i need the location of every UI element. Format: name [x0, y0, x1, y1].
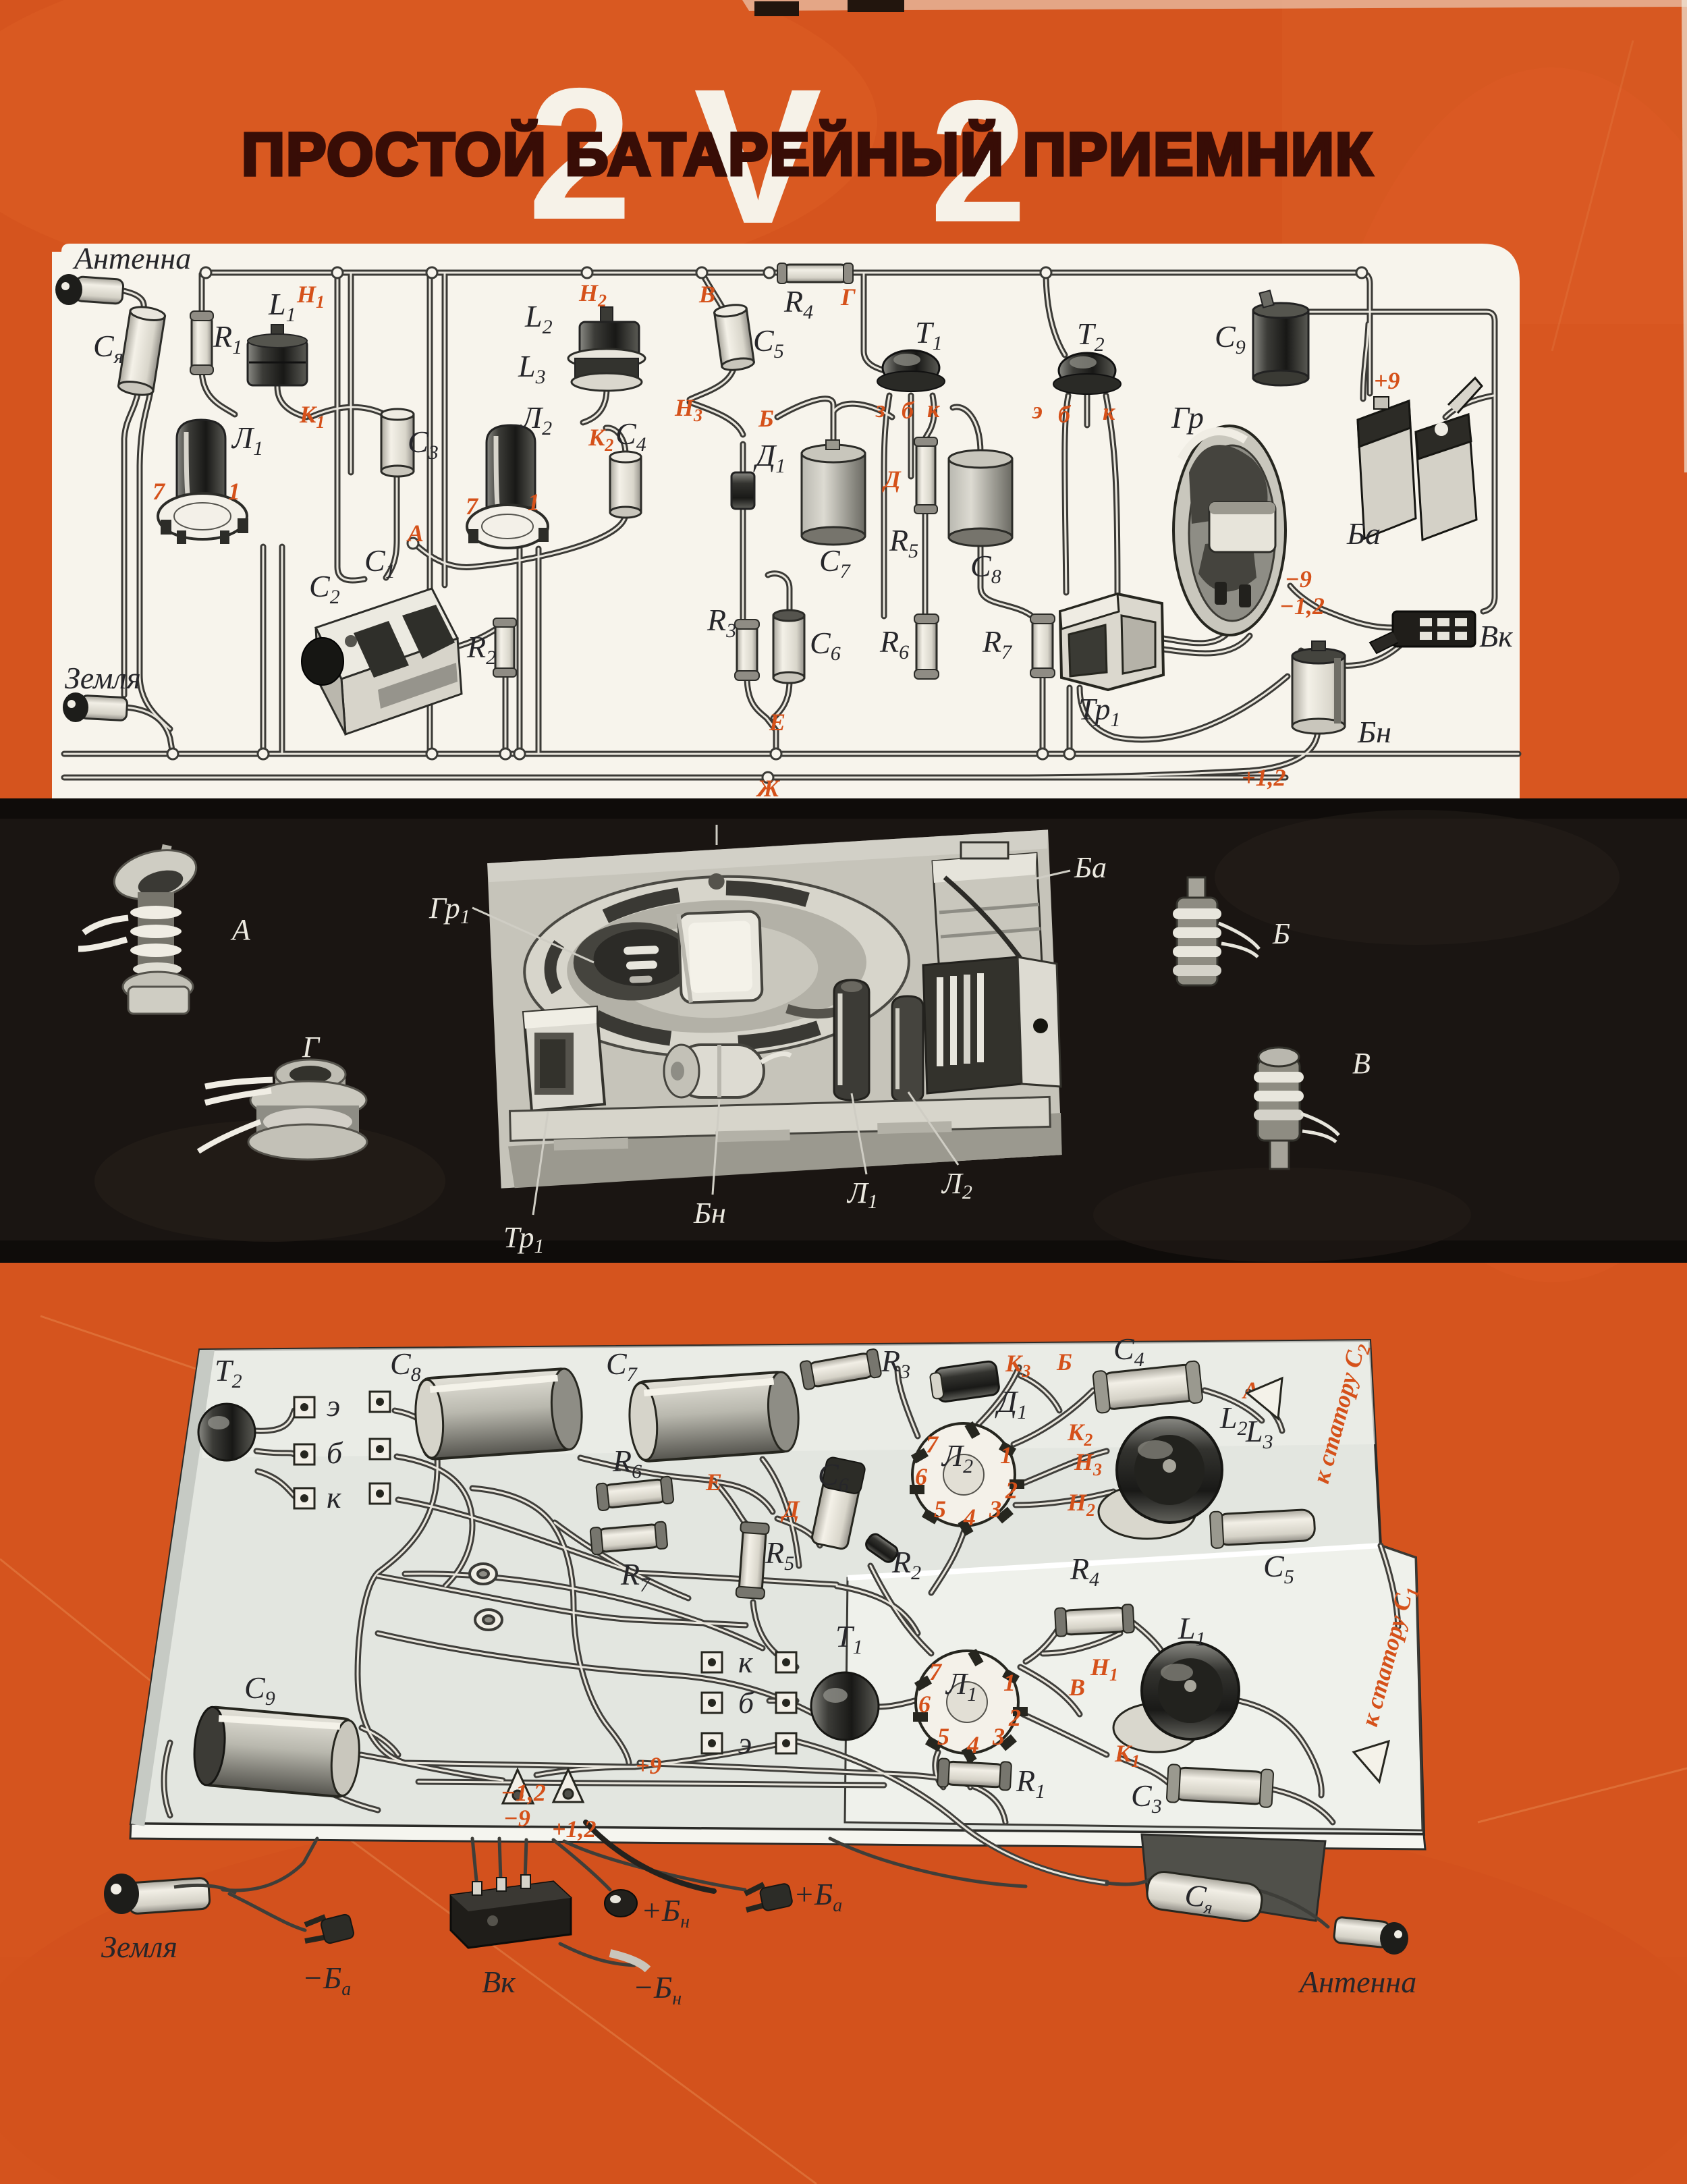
svg-text:1: 1: [1000, 1442, 1012, 1469]
svg-text:−9: −9: [503, 1805, 530, 1832]
svg-text:Б: Б: [1272, 917, 1290, 950]
svg-text:−1,2: −1,2: [1279, 593, 1325, 620]
svg-text:−1,2: −1,2: [501, 1779, 546, 1806]
svg-text:В: В: [698, 281, 715, 308]
svg-text:В: В: [1068, 1674, 1085, 1701]
svg-text:3: 3: [992, 1723, 1005, 1750]
svg-text:э: э: [1032, 397, 1043, 424]
svg-text:7: 7: [926, 1431, 939, 1458]
svg-text:к: к: [927, 395, 940, 422]
svg-text:7: 7: [466, 493, 479, 520]
svg-text:з: з: [875, 395, 885, 422]
svg-text:к: к: [738, 1645, 753, 1679]
svg-text:Земля: Земля: [101, 1930, 177, 1964]
svg-text:Ж: Ж: [755, 775, 780, 802]
svg-text:Д: Д: [882, 466, 902, 493]
svg-text:5: 5: [937, 1723, 949, 1750]
svg-text:Б: Б: [1056, 1348, 1072, 1375]
svg-text:Е: Е: [705, 1469, 722, 1496]
svg-text:Земля: Земля: [65, 661, 141, 695]
svg-text:Б: Б: [758, 405, 774, 432]
svg-text:э: э: [327, 1388, 340, 1423]
svg-text:Бн: Бн: [693, 1197, 726, 1230]
svg-text:Е: Е: [769, 709, 785, 736]
svg-text:б: б: [902, 397, 915, 424]
svg-text:А: А: [230, 913, 251, 946]
svg-text:Вк: Вк: [482, 1965, 516, 1999]
svg-text:+1,2: +1,2: [1242, 764, 1286, 791]
svg-text:Гр: Гр: [1171, 400, 1204, 435]
svg-text:7: 7: [929, 1658, 943, 1685]
svg-text:7: 7: [153, 478, 166, 505]
svg-text:Д: Д: [781, 1496, 800, 1523]
svg-text:4: 4: [966, 1731, 979, 1758]
svg-text:к: к: [1103, 398, 1115, 425]
svg-text:В: В: [1352, 1047, 1371, 1080]
svg-text:1: 1: [228, 478, 240, 505]
svg-text:э: э: [738, 1726, 752, 1760]
svg-text:Антенна: Антенна: [1298, 1965, 1416, 1999]
svg-text:ПРОСТОЙ БАТАРЕЙНЫЙ ПРИЕМНИК: ПРОСТОЙ БАТАРЕЙНЫЙ ПРИЕМНИК: [242, 120, 1373, 188]
svg-text:Бн: Бн: [1357, 715, 1391, 749]
svg-text:Г: Г: [840, 283, 856, 310]
svg-text:5: 5: [934, 1496, 946, 1523]
svg-text:А: А: [406, 520, 424, 547]
svg-text:2: 2: [1008, 1704, 1021, 1731]
svg-text:б: б: [1058, 401, 1072, 428]
svg-text:2: 2: [1005, 1477, 1018, 1504]
svg-text:Г: Г: [302, 1031, 321, 1064]
svg-text:+9: +9: [636, 1752, 662, 1779]
svg-text:б: б: [327, 1436, 343, 1470]
svg-text:4: 4: [963, 1504, 976, 1531]
svg-text:6: 6: [918, 1691, 931, 1718]
svg-text:6: 6: [915, 1463, 927, 1490]
svg-text:Вк: Вк: [1479, 619, 1513, 653]
svg-text:1: 1: [1003, 1669, 1016, 1696]
svg-text:−9: −9: [1285, 566, 1312, 593]
svg-text:Ба: Ба: [1074, 851, 1107, 884]
svg-text:к: к: [327, 1480, 341, 1514]
svg-text:б: б: [738, 1685, 755, 1720]
svg-text:+9: +9: [1374, 367, 1400, 394]
svg-text:Ба: Ба: [1346, 516, 1381, 551]
svg-text:1: 1: [528, 489, 540, 516]
svg-text:+1,2: +1,2: [552, 1816, 597, 1842]
svg-text:3: 3: [989, 1496, 1001, 1523]
svg-text:Антенна: Антенна: [72, 241, 191, 275]
